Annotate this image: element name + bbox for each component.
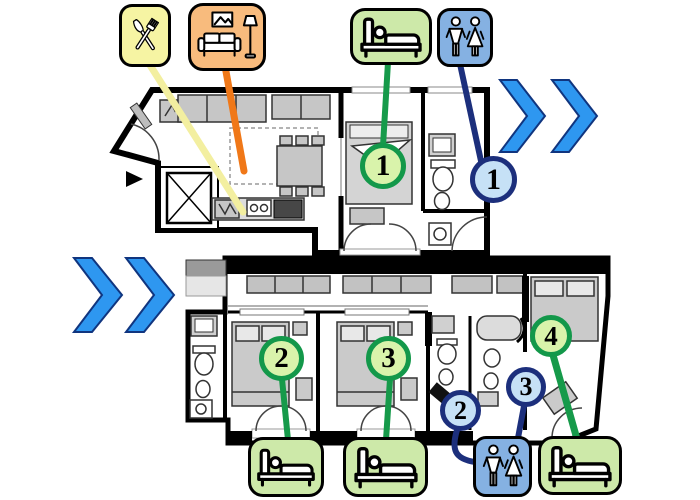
bedroom-icon — [352, 444, 420, 490]
dining-table — [277, 136, 324, 196]
chevron-icon — [500, 80, 545, 152]
bedroom-3-number: 3 — [381, 344, 396, 373]
bathroom-icon — [479, 441, 527, 493]
bathroom-2-marker: 2 — [440, 390, 481, 431]
bedroom-1-marker: 1 — [360, 143, 406, 189]
man-glyph — [447, 17, 465, 55]
chevron-icon — [126, 258, 174, 332]
bedroom-tile-2 — [248, 437, 324, 497]
bedroom-3-marker: 3 — [366, 336, 411, 381]
bedroom-4-marker: 4 — [530, 315, 572, 357]
living-room-icon — [194, 9, 260, 65]
floorplan-diagram: 1 1 2 3 4 2 3 — [0, 0, 700, 500]
kitchen-tile — [119, 4, 171, 67]
woman-glyph — [504, 445, 521, 485]
living-room-tile — [188, 3, 266, 71]
bedroom-tile-4 — [538, 436, 622, 495]
bathroom-1-number: 1 — [486, 165, 501, 195]
bedroom-1-number: 1 — [376, 151, 391, 181]
bathroom-2-number: 2 — [454, 398, 467, 424]
bathroom-icon — [442, 13, 488, 63]
bathroom-tile-2 — [473, 436, 532, 497]
plans-canvas — [0, 0, 700, 500]
upper-floor-plan — [114, 87, 487, 255]
kitchen-counter — [212, 198, 304, 220]
bathroom-tile-1 — [437, 8, 493, 67]
bedroom-icon — [546, 443, 614, 489]
sofa-glyph — [198, 34, 240, 56]
bathroom-3-number: 3 — [520, 374, 533, 400]
bedroom-tile-1 — [350, 8, 432, 65]
balcony-awnings — [247, 276, 525, 293]
bedroom3-connector-line — [386, 379, 390, 440]
bedroom-2-number: 2 — [274, 344, 289, 373]
entry-arrow-icon — [126, 171, 143, 187]
bedroom-4-number: 4 — [544, 323, 558, 350]
bathroom-3-marker: 3 — [506, 367, 546, 407]
man-glyph — [483, 445, 502, 485]
woman-glyph — [467, 17, 484, 55]
bedroom-icon — [358, 14, 424, 60]
bathroom-1-marker: 1 — [470, 156, 517, 203]
elevator — [160, 167, 218, 229]
floor-lamp-glyph — [244, 16, 257, 57]
bedroom-tile-3 — [343, 437, 428, 497]
kitchen-icon — [124, 10, 166, 62]
chevron-icon — [552, 80, 597, 152]
bedroom-icon — [255, 444, 317, 490]
chevron-icon — [74, 258, 122, 332]
bedroom-2-marker: 2 — [259, 336, 304, 381]
